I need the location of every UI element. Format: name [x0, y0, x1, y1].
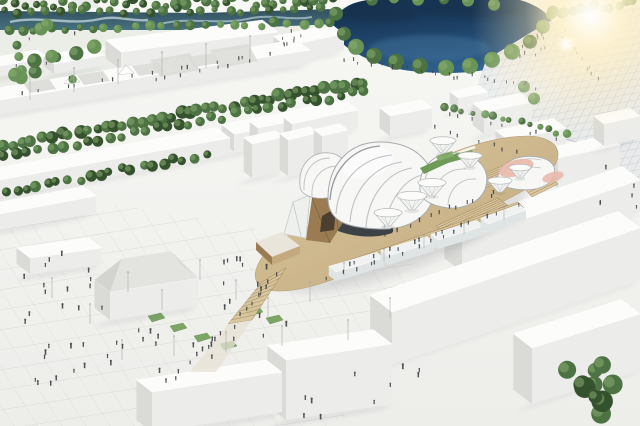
light-pole-head — [343, 262, 345, 264]
tree-canopy-highlight — [187, 10, 191, 14]
person-head — [242, 263, 244, 265]
person — [246, 308, 247, 311]
person — [220, 332, 221, 335]
person — [535, 131, 536, 134]
person — [38, 90, 39, 92]
tree-canopy-highlight — [338, 81, 345, 88]
person-head — [418, 368, 420, 370]
person-head — [453, 76, 454, 77]
tree-canopy-highlight — [439, 61, 448, 70]
tree-canopy-highlight — [174, 120, 180, 126]
person-head — [229, 299, 231, 301]
light-pole-head — [463, 220, 465, 222]
tree-canopy-highlight — [84, 137, 89, 142]
light-pole-head — [423, 234, 425, 236]
person — [29, 38, 30, 40]
tree-canopy-highlight — [211, 1, 216, 6]
tree-canopy-highlight — [14, 187, 19, 192]
tree-canopy-highlight — [559, 363, 569, 373]
person — [35, 379, 36, 382]
light-pole-head — [161, 289, 163, 291]
person-head — [600, 200, 602, 202]
person — [110, 362, 112, 366]
tree-canopy-highlight — [30, 28, 34, 32]
person-head — [90, 277, 92, 279]
tree-canopy-highlight — [12, 149, 18, 155]
person-head — [501, 147, 503, 149]
person — [193, 344, 194, 348]
person-head — [311, 398, 313, 400]
tree-canopy-highlight — [22, 3, 26, 7]
person-head — [202, 346, 204, 348]
person — [24, 320, 25, 324]
tree-canopy-highlight — [227, 7, 232, 12]
person-head — [389, 254, 390, 255]
tree-canopy-highlight — [574, 377, 584, 387]
person-head — [460, 222, 462, 224]
person-head — [223, 281, 225, 283]
person — [516, 151, 517, 154]
tree-canopy-highlight — [37, 133, 43, 139]
light-pole-head — [389, 297, 391, 299]
person-head — [238, 56, 240, 58]
person — [305, 397, 306, 400]
tree-canopy-highlight — [253, 105, 258, 110]
person — [326, 278, 327, 280]
person-head — [181, 66, 182, 67]
person-head — [410, 224, 411, 225]
person-head — [402, 363, 404, 365]
tree-canopy-highlight — [231, 21, 236, 26]
person-head — [357, 62, 358, 63]
person-head — [24, 319, 26, 321]
light-pole-head — [29, 75, 31, 77]
aerial-rendering-stage — [0, 0, 640, 426]
person — [116, 342, 117, 345]
person-head — [421, 70, 422, 71]
person-head — [320, 414, 322, 416]
person-head — [418, 237, 420, 239]
person — [455, 207, 456, 210]
tree-canopy-highlight — [141, 127, 146, 132]
person — [258, 294, 259, 297]
person — [150, 330, 152, 334]
person — [238, 58, 239, 61]
person — [343, 271, 344, 274]
person-head — [46, 62, 47, 63]
tree-canopy-highlight — [13, 10, 18, 15]
light-pole-head — [503, 206, 505, 208]
tree-canopy-highlight — [553, 131, 556, 134]
person-head — [276, 272, 278, 274]
lens-flare-dot — [560, 38, 572, 50]
person — [276, 273, 277, 276]
person-head — [343, 270, 345, 272]
tree-canopy-highlight — [69, 7, 73, 11]
tree-canopy-highlight — [21, 148, 26, 153]
person — [83, 344, 84, 347]
tree-canopy-highlight — [138, 118, 144, 124]
person-head — [430, 239, 432, 241]
person — [320, 416, 322, 420]
person — [282, 38, 283, 40]
person-head — [496, 212, 497, 213]
person — [285, 323, 287, 327]
person — [55, 377, 56, 381]
person-head — [122, 344, 124, 346]
light-pole-head — [127, 271, 129, 273]
person-head — [220, 331, 222, 333]
tree-canopy-highlight — [265, 97, 270, 102]
person — [407, 67, 408, 69]
person-head — [455, 206, 457, 208]
person-head — [491, 194, 493, 196]
person — [234, 326, 235, 329]
person — [68, 86, 69, 89]
person-head — [157, 334, 159, 336]
person-head — [391, 228, 393, 230]
person-head — [89, 284, 91, 286]
person-head — [373, 254, 375, 256]
person-head — [397, 247, 398, 248]
person — [494, 144, 495, 147]
person-head — [435, 232, 436, 233]
person — [155, 343, 156, 346]
tree-canopy-highlight — [316, 3, 321, 8]
person-head — [37, 380, 39, 382]
person-head — [453, 230, 455, 232]
person — [419, 219, 420, 222]
person-head — [189, 361, 190, 362]
tree-canopy-highlight — [190, 105, 197, 112]
tree-canopy-highlight — [315, 20, 320, 25]
person-head — [116, 341, 118, 343]
person — [556, 139, 557, 141]
person-head — [29, 37, 30, 38]
person — [178, 370, 179, 373]
person — [472, 200, 473, 203]
person — [48, 345, 49, 348]
tree-canopy-highlight — [120, 10, 125, 15]
person-head — [494, 142, 496, 144]
person — [436, 233, 437, 235]
light-pole-head — [225, 331, 227, 333]
funnel-rim — [418, 179, 446, 187]
person-head — [175, 376, 177, 378]
tree-canopy-highlight — [62, 27, 66, 31]
tree-canopy-highlight — [278, 103, 283, 108]
tree-canopy-highlight — [106, 7, 110, 11]
person — [600, 201, 601, 204]
tree-canopy-highlight — [218, 105, 223, 110]
person — [291, 30, 292, 33]
person-head — [23, 274, 25, 276]
tree-canopy-highlight — [209, 102, 215, 108]
person — [260, 293, 261, 295]
tree-canopy-highlight — [9, 69, 17, 77]
person-head — [102, 78, 103, 79]
tree-canopy-highlight — [259, 96, 264, 101]
person — [236, 258, 237, 262]
funnel-rim — [397, 191, 427, 200]
tree-canopy-highlight — [57, 8, 62, 13]
person-head — [44, 349, 46, 351]
person-head — [349, 261, 351, 263]
person-head — [227, 258, 229, 260]
tree-canopy-highlight — [30, 182, 36, 188]
tree-canopy-highlight — [190, 155, 195, 160]
person-head — [392, 64, 393, 65]
person-head — [138, 328, 140, 330]
person — [257, 283, 258, 287]
person — [389, 248, 390, 251]
person-head — [246, 307, 247, 308]
tower-front-a-side — [244, 138, 252, 178]
person — [73, 370, 74, 373]
tree-canopy-highlight — [106, 134, 112, 140]
person-head — [236, 256, 238, 258]
person-head — [269, 52, 271, 54]
light-pole-head — [281, 325, 283, 327]
tree-canopy-highlight — [359, 87, 365, 93]
tree-canopy-highlight — [158, 23, 162, 27]
person — [249, 60, 250, 62]
person — [157, 335, 158, 339]
person — [227, 260, 228, 263]
light-pole-head — [309, 281, 311, 283]
person — [478, 141, 479, 143]
tree-canopy-highlight — [266, 6, 271, 11]
person — [460, 224, 461, 227]
tree-canopy-highlight — [307, 5, 311, 9]
person-head — [486, 214, 488, 216]
funnel-rim — [488, 177, 512, 184]
tree-canopy-highlight — [18, 138, 24, 144]
person-head — [156, 78, 157, 79]
tree-canopy-highlight — [218, 117, 223, 122]
person — [84, 364, 86, 368]
tree-canopy-highlight — [147, 162, 153, 168]
tree-canopy-highlight — [286, 99, 292, 105]
person — [175, 377, 176, 380]
tree-canopy-highlight — [300, 21, 306, 27]
tree-canopy-highlight — [93, 137, 99, 143]
person-head — [152, 71, 153, 72]
person-head — [303, 413, 305, 415]
person-head — [259, 313, 261, 315]
tree-canopy-highlight — [389, 55, 398, 64]
tree-canopy-highlight — [241, 98, 247, 104]
person-head — [417, 372, 419, 374]
person-head — [142, 337, 144, 339]
person-head — [382, 62, 383, 63]
tree-canopy-highlight — [604, 377, 615, 388]
person — [46, 63, 47, 65]
tree-canopy-highlight — [104, 168, 109, 173]
person-head — [234, 325, 236, 327]
person — [491, 195, 492, 198]
person — [122, 345, 123, 348]
person — [353, 58, 354, 61]
person — [266, 266, 268, 270]
tree-canopy-highlight — [147, 9, 152, 14]
tree-canopy-highlight — [272, 89, 280, 97]
person-head — [373, 400, 375, 402]
person — [286, 43, 287, 45]
person — [102, 80, 103, 82]
person-head — [214, 336, 216, 338]
tree-canopy-highlight — [73, 142, 78, 147]
person — [242, 57, 243, 59]
person-head — [371, 63, 372, 64]
tree-canopy-highlight — [130, 127, 135, 132]
person-head — [211, 354, 213, 356]
tree-canopy-highlight — [178, 157, 183, 162]
person — [164, 77, 165, 80]
person-head — [294, 37, 295, 38]
person-head — [354, 372, 356, 374]
tree-canopy-highlight — [34, 146, 39, 151]
tree-canopy-highlight — [46, 132, 53, 139]
person-head — [435, 73, 436, 74]
person — [419, 369, 420, 372]
person-head — [396, 227, 398, 229]
person — [45, 291, 46, 294]
person-head — [636, 205, 637, 206]
person — [300, 35, 301, 37]
tree-canopy-highlight — [25, 137, 31, 143]
person — [23, 275, 24, 279]
person-head — [44, 289, 46, 291]
tree-canopy-highlight — [301, 87, 307, 93]
person-head — [468, 220, 470, 222]
person — [371, 64, 372, 67]
tree-canopy-highlight — [19, 27, 25, 33]
person — [311, 399, 313, 403]
tree-canopy-highlight — [318, 82, 325, 89]
person-head — [419, 217, 421, 219]
person — [631, 195, 632, 198]
person — [431, 214, 432, 217]
tree-canopy-highlight — [75, 127, 83, 135]
tree-canopy-highlight — [169, 154, 175, 160]
person — [78, 307, 79, 311]
tree-canopy-highlight — [146, 21, 152, 27]
person — [283, 43, 284, 45]
person — [112, 78, 113, 81]
tree-canopy-highlight — [244, 106, 249, 111]
person-head — [78, 305, 80, 307]
tower-front-b-side — [280, 134, 288, 176]
tree-canopy-highlight — [367, 49, 376, 58]
person — [402, 365, 404, 369]
light-pole-head — [161, 51, 163, 53]
person-head — [267, 279, 269, 281]
tree-canopy-highlight — [413, 59, 422, 68]
person-head — [530, 132, 531, 133]
person — [217, 62, 218, 64]
person-head — [55, 375, 57, 377]
tree-canopy-highlight — [42, 20, 49, 27]
person-head — [45, 263, 47, 265]
person — [181, 67, 182, 70]
tree-canopy-highlight — [284, 90, 291, 97]
tree-canopy-highlight — [330, 81, 338, 89]
tree-canopy-highlight — [163, 122, 169, 128]
person-head — [265, 264, 267, 266]
person — [487, 215, 488, 218]
tree-canopy-highlight — [186, 21, 192, 27]
person — [443, 236, 444, 238]
lake-sky-reflection — [370, 35, 490, 61]
person — [159, 369, 160, 373]
person-head — [82, 342, 84, 344]
person-head — [389, 247, 391, 249]
person — [418, 374, 420, 378]
person — [224, 306, 226, 310]
tree-canopy-highlight — [23, 186, 28, 191]
tree-canopy-highlight — [263, 103, 269, 109]
person — [354, 373, 355, 376]
person-head — [223, 259, 225, 261]
person — [68, 29, 69, 31]
light-pole-head — [73, 67, 75, 69]
person-head — [73, 369, 75, 371]
person-head — [258, 293, 260, 295]
person — [152, 72, 153, 75]
tree-canopy-highlight — [201, 104, 207, 110]
person — [227, 65, 228, 68]
funnel-rim — [374, 209, 402, 217]
person-head — [211, 336, 213, 338]
person-head — [84, 363, 86, 365]
tree-canopy-highlight — [231, 107, 237, 113]
person-head — [239, 312, 241, 314]
person — [402, 66, 403, 68]
person — [214, 338, 215, 341]
tree-canopy-highlight — [338, 28, 346, 36]
tree-canopy-highlight — [357, 79, 363, 85]
tree-canopy-highlight — [269, 17, 275, 23]
person — [402, 253, 403, 256]
tree-canopy-highlight — [202, 22, 206, 26]
tree-canopy-highlight — [86, 171, 92, 177]
person — [442, 231, 443, 234]
person — [449, 206, 450, 209]
person-head — [61, 250, 63, 252]
tree-canopy-highlight — [70, 48, 78, 56]
person-head — [449, 204, 451, 206]
person-head — [392, 66, 393, 67]
tree-canopy-highlight — [463, 59, 472, 68]
person — [530, 133, 531, 135]
person-head — [371, 262, 372, 263]
person-head — [88, 267, 90, 269]
light-pole-head — [89, 303, 91, 305]
tree-canopy-highlight — [5, 26, 11, 32]
funnel-rim — [458, 152, 482, 159]
person — [16, 65, 17, 67]
person — [233, 338, 234, 341]
person — [89, 285, 90, 288]
tree-canopy-highlight — [133, 9, 137, 13]
person — [389, 256, 390, 258]
person — [390, 384, 391, 387]
person — [211, 356, 212, 359]
tree-canopy-highlight — [594, 358, 604, 368]
tree-canopy-highlight — [250, 7, 255, 12]
person-head — [283, 42, 284, 43]
